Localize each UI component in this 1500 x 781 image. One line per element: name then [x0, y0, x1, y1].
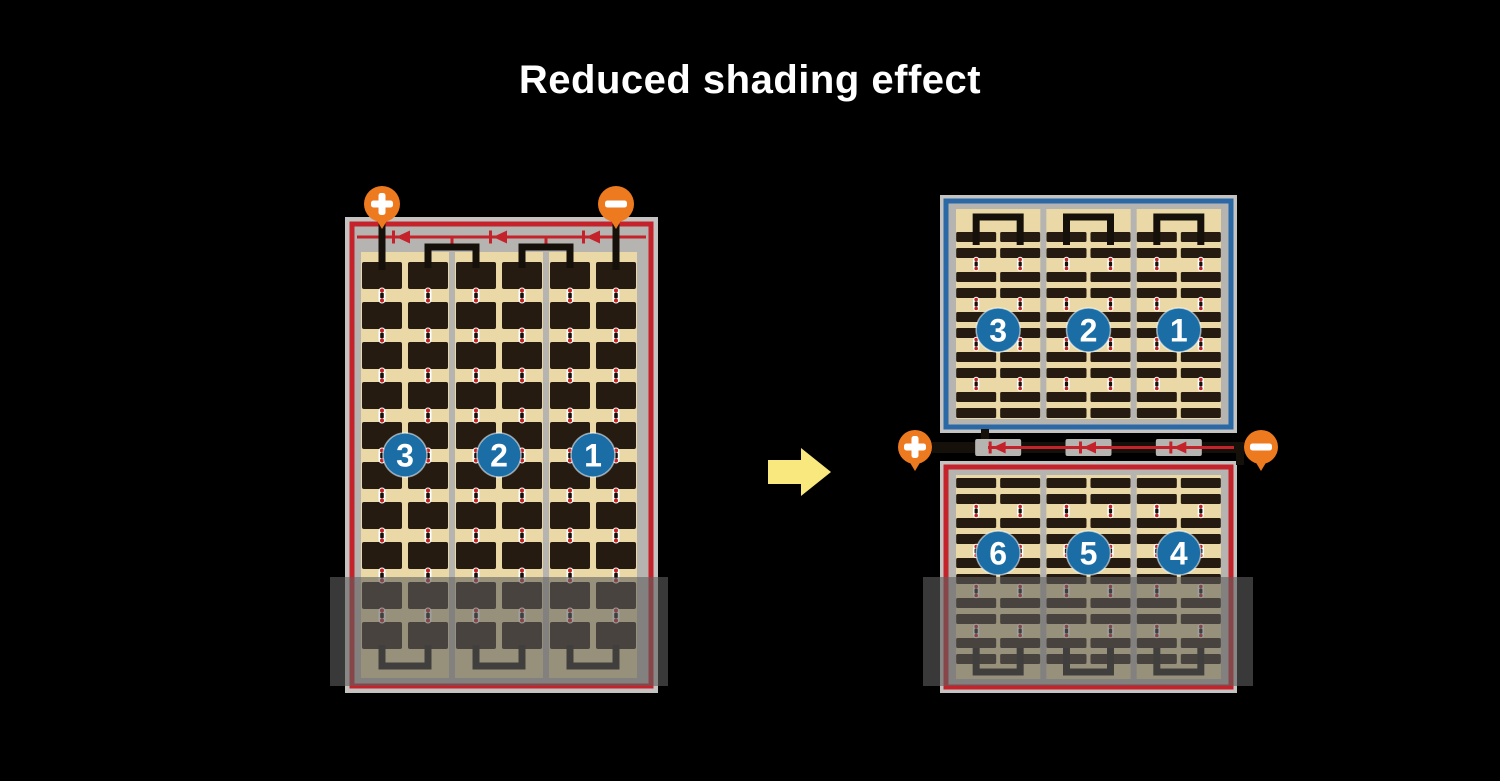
- solder-joint: [1107, 377, 1113, 391]
- solder-bar: [520, 333, 524, 339]
- solder-dot-top: [474, 409, 478, 413]
- solder-joint: [425, 408, 432, 424]
- solder-dot-top: [426, 329, 430, 333]
- half-cell: [1181, 272, 1221, 282]
- plus-terminal-icon: [898, 430, 932, 471]
- solder-dot-bottom: [1018, 514, 1022, 518]
- solder-bar: [426, 533, 430, 539]
- half-cell: [1046, 272, 1086, 282]
- solder-dot-bottom: [1065, 514, 1069, 518]
- half-cell: [1046, 518, 1086, 528]
- transition-arrow-icon: [768, 448, 831, 496]
- solar-cell: [408, 382, 448, 409]
- solar-cell: [550, 382, 590, 409]
- half-cell: [1090, 248, 1130, 258]
- half-cell: [1046, 368, 1086, 378]
- badge-number: 4: [1170, 536, 1188, 572]
- string-number-badge: 3: [383, 433, 427, 477]
- string-number-badge: 1: [571, 433, 615, 477]
- solder-dot-top: [380, 569, 384, 573]
- solder-joint: [473, 528, 480, 544]
- solder-dot-bottom: [1199, 347, 1203, 351]
- solder-joint: [379, 368, 386, 384]
- solder-dot-top: [520, 409, 524, 413]
- solder-dot-bottom: [614, 339, 618, 343]
- solder-dot-top: [1065, 505, 1069, 509]
- solder-joint: [1017, 377, 1023, 391]
- solder-dot-bottom: [474, 339, 478, 343]
- solder-dot-bottom: [520, 339, 524, 343]
- solder-joint: [519, 408, 526, 424]
- half-cell: [1137, 288, 1177, 298]
- solder-dot-bottom: [1018, 387, 1022, 391]
- half-cell: [1000, 408, 1040, 418]
- solder-bar: [614, 373, 618, 379]
- half-cell: [1000, 248, 1040, 258]
- half-cell: [956, 248, 996, 258]
- solder-dot-top: [568, 409, 572, 413]
- solder-dot-top: [520, 569, 524, 573]
- solder-dot-top: [1018, 505, 1022, 509]
- solder-dot-bottom: [568, 379, 572, 383]
- solder-dot-top: [1199, 505, 1203, 509]
- solar-cell: [362, 302, 402, 329]
- solder-dot-top: [1155, 258, 1159, 262]
- solder-dot-bottom: [520, 419, 524, 423]
- solder-dot-top: [426, 569, 430, 573]
- badge-number: 1: [584, 438, 602, 474]
- solder-joint: [519, 528, 526, 544]
- solar-cell: [456, 502, 496, 529]
- solder-dot-top: [380, 529, 384, 533]
- solder-bar: [520, 293, 524, 299]
- solder-bar: [426, 333, 430, 339]
- half-cell: [1090, 494, 1130, 504]
- solder-bar: [568, 413, 572, 419]
- solder-dot-bottom: [426, 299, 430, 303]
- solder-dot-bottom: [974, 347, 978, 351]
- half-cell: [1046, 392, 1086, 402]
- solder-bar: [975, 301, 978, 306]
- solder-dot-bottom: [380, 499, 384, 503]
- solder-bar: [520, 373, 524, 379]
- solder-bar: [380, 413, 384, 419]
- right-top-half-module: 321: [940, 195, 1237, 433]
- solder-joint: [379, 288, 386, 304]
- solder-bar: [426, 293, 430, 299]
- solder-bar: [380, 293, 384, 299]
- solder-dot-top: [614, 329, 618, 333]
- half-cell: [956, 392, 996, 402]
- solder-dot-bottom: [426, 419, 430, 423]
- solder-dot-top: [974, 505, 978, 509]
- solder-dot-top: [1199, 258, 1203, 262]
- solder-dot-bottom: [974, 267, 978, 271]
- solder-dot-top: [426, 529, 430, 533]
- solder-dot-top: [614, 569, 618, 573]
- solder-dot-top: [1155, 298, 1159, 302]
- solder-bar: [1019, 261, 1022, 266]
- diode-cathode-bar: [1079, 442, 1082, 454]
- half-cell: [956, 272, 996, 282]
- badge-number: 3: [396, 438, 414, 474]
- solder-bar: [474, 373, 478, 379]
- solder-bar: [568, 373, 572, 379]
- solder-dot-top: [1018, 298, 1022, 302]
- string-number-badge: 5: [1066, 531, 1110, 575]
- solder-dot-bottom: [1018, 347, 1022, 351]
- solder-dot-bottom: [426, 499, 430, 503]
- terminal-symbol-bar-vertical: [912, 436, 919, 458]
- terminal-symbol-bar: [1250, 444, 1272, 451]
- solder-dot-top: [1065, 258, 1069, 262]
- solder-bar: [474, 533, 478, 539]
- solder-joint: [613, 488, 620, 504]
- solder-dot-top: [1109, 298, 1113, 302]
- solder-bar: [1199, 508, 1202, 513]
- solder-joint: [1063, 297, 1069, 311]
- badge-number: 3: [989, 313, 1007, 349]
- solder-dot-bottom: [426, 379, 430, 383]
- solder-dot-top: [568, 289, 572, 293]
- solder-dot-top: [568, 369, 572, 373]
- solar-cell: [502, 502, 542, 529]
- solder-dot-top: [1018, 258, 1022, 262]
- solder-bar: [568, 293, 572, 299]
- solder-dot-top: [474, 369, 478, 373]
- solder-bar: [1065, 508, 1068, 513]
- solder-dot-top: [380, 489, 384, 493]
- solder-joint: [1198, 504, 1204, 518]
- solder-dot-top: [474, 329, 478, 333]
- solder-dot-top: [614, 489, 618, 493]
- solder-dot-top: [614, 369, 618, 373]
- half-cell: [1046, 288, 1086, 298]
- solder-bar: [614, 333, 618, 339]
- half-cell: [1137, 248, 1177, 258]
- half-cell: [1137, 518, 1177, 528]
- solder-dot-top: [520, 489, 524, 493]
- column-separator: [1131, 209, 1137, 419]
- solder-joint: [973, 257, 979, 271]
- half-cell: [1000, 478, 1040, 488]
- solder-bar: [975, 341, 978, 346]
- solder-bar: [1065, 381, 1068, 386]
- half-cell: [1046, 248, 1086, 258]
- solder-joint: [613, 368, 620, 384]
- solder-bar: [614, 293, 618, 299]
- solder-bar: [975, 508, 978, 513]
- solder-bar: [380, 533, 384, 539]
- solder-bar: [568, 533, 572, 539]
- solar-cell: [456, 342, 496, 369]
- solder-dot-top: [614, 529, 618, 533]
- half-cell: [1181, 248, 1221, 258]
- solder-joint: [973, 297, 979, 311]
- solder-dot-top: [568, 489, 572, 493]
- solder-bar: [1199, 341, 1202, 346]
- solder-dot-top: [474, 289, 478, 293]
- string-number-badge: 3: [976, 308, 1020, 352]
- solder-joint: [1154, 504, 1160, 518]
- solder-dot-bottom: [1109, 347, 1113, 351]
- solder-dot-bottom: [474, 539, 478, 543]
- half-cell: [956, 518, 996, 528]
- solder-joint: [473, 368, 480, 384]
- solder-bar: [380, 493, 384, 499]
- solder-dot-bottom: [1065, 387, 1069, 391]
- solder-dot-top: [614, 289, 618, 293]
- solar-cell: [408, 302, 448, 329]
- string-number-badge: 2: [1066, 308, 1110, 352]
- half-cell: [1090, 408, 1130, 418]
- half-cell: [956, 352, 996, 362]
- solder-dot-bottom: [1199, 514, 1203, 518]
- solar-cell: [362, 342, 402, 369]
- solder-bar: [1065, 301, 1068, 306]
- solder-joint: [425, 488, 432, 504]
- solder-dot-top: [380, 369, 384, 373]
- string-number-badge: 1: [1157, 308, 1201, 352]
- solder-bar: [380, 373, 384, 379]
- solder-dot-bottom: [474, 499, 478, 503]
- solder-joint: [519, 368, 526, 384]
- half-cell: [1181, 478, 1221, 488]
- solder-bar: [474, 493, 478, 499]
- solar-cell: [456, 382, 496, 409]
- solder-bar: [1155, 381, 1158, 386]
- solder-joint: [1198, 377, 1204, 391]
- solar-cell: [502, 342, 542, 369]
- half-cell: [1137, 494, 1177, 504]
- solder-dot-top: [380, 409, 384, 413]
- solder-bar: [426, 413, 430, 419]
- half-cell: [1137, 272, 1177, 282]
- solder-joint: [973, 377, 979, 391]
- solder-dot-bottom: [1155, 514, 1159, 518]
- solar-cell: [550, 302, 590, 329]
- solar-cell: [502, 302, 542, 329]
- solder-bar: [1109, 301, 1112, 306]
- solder-bar: [474, 413, 478, 419]
- solder-bar: [1065, 261, 1068, 266]
- solder-joint: [613, 528, 620, 544]
- solar-cell: [408, 342, 448, 369]
- half-cell: [1181, 494, 1221, 504]
- solder-dot-bottom: [380, 299, 384, 303]
- solder-joint: [1198, 257, 1204, 271]
- solder-dot-bottom: [1018, 267, 1022, 271]
- solder-dot-top: [614, 409, 618, 413]
- solder-joint: [1154, 377, 1160, 391]
- solder-bar: [520, 533, 524, 539]
- solder-joint: [379, 488, 386, 504]
- half-cell: [1137, 392, 1177, 402]
- solder-joint: [473, 488, 480, 504]
- solder-dot-top: [520, 289, 524, 293]
- solder-dot-top: [426, 409, 430, 413]
- solar-cell: [502, 542, 542, 569]
- solder-bar: [1109, 381, 1112, 386]
- solder-dot-top: [426, 489, 430, 493]
- solder-bar: [426, 373, 430, 379]
- solder-dot-bottom: [520, 299, 524, 303]
- half-cell: [956, 494, 996, 504]
- solder-bar: [426, 493, 430, 499]
- diode-cathode-bar: [989, 442, 992, 454]
- solder-dot-top: [520, 529, 524, 533]
- badge-number: 1: [1170, 313, 1188, 349]
- solder-dot-top: [380, 329, 384, 333]
- solder-dot-top: [520, 329, 524, 333]
- solder-dot-bottom: [1109, 514, 1113, 518]
- solder-bar: [1065, 341, 1068, 346]
- half-cell: [1137, 368, 1177, 378]
- solder-joint: [567, 488, 574, 504]
- half-cell: [1090, 288, 1130, 298]
- solder-dot-top: [1065, 378, 1069, 382]
- solder-joint: [613, 328, 620, 344]
- badge-number: 2: [490, 438, 508, 474]
- solder-joint: [1107, 504, 1113, 518]
- solder-joint: [379, 528, 386, 544]
- solder-dot-bottom: [474, 419, 478, 423]
- solder-joint: [1017, 297, 1023, 311]
- half-cell: [1181, 368, 1221, 378]
- half-cell: [1181, 408, 1221, 418]
- solder-dot-bottom: [1109, 387, 1113, 391]
- shading-overlay-left: [330, 577, 668, 686]
- half-cell: [1090, 272, 1130, 282]
- solder-joint: [473, 328, 480, 344]
- solder-dot-top: [568, 329, 572, 333]
- solder-bar: [1019, 301, 1022, 306]
- shading-effect-diagram: 321321654: [0, 0, 1500, 781]
- solder-bar: [568, 333, 572, 339]
- solder-dot-bottom: [614, 379, 618, 383]
- minus-terminal-icon: [1244, 430, 1278, 471]
- solder-joint: [613, 288, 620, 304]
- solder-dot-bottom: [380, 379, 384, 383]
- solder-dot-top: [474, 489, 478, 493]
- solder-dot-top: [1199, 298, 1203, 302]
- solder-joint: [379, 328, 386, 344]
- solder-bar: [568, 493, 572, 499]
- solder-bar: [1109, 341, 1112, 346]
- solder-joint: [425, 288, 432, 304]
- shading-overlay-right: [923, 577, 1253, 686]
- solder-dot-top: [974, 258, 978, 262]
- solder-bar: [1155, 341, 1158, 346]
- half-cell: [956, 368, 996, 378]
- solder-dot-top: [1065, 298, 1069, 302]
- solder-dot-top: [1109, 258, 1113, 262]
- solder-bar: [1155, 508, 1158, 513]
- solder-dot-bottom: [974, 307, 978, 311]
- solder-dot-top: [426, 369, 430, 373]
- solder-bar: [474, 293, 478, 299]
- terminal-symbol-bar-vertical: [379, 193, 386, 215]
- solder-bar: [1155, 261, 1158, 266]
- solder-joint: [1107, 297, 1113, 311]
- diode-cathode-bar: [489, 231, 492, 244]
- solder-dot-bottom: [974, 514, 978, 518]
- solder-dot-top: [1199, 378, 1203, 382]
- solar-cell: [362, 542, 402, 569]
- half-cell: [1000, 494, 1040, 504]
- half-cell: [1090, 518, 1130, 528]
- half-cell: [1046, 478, 1086, 488]
- solar-cell: [362, 502, 402, 529]
- solder-dot-bottom: [1109, 267, 1113, 271]
- solder-bar: [1019, 341, 1022, 346]
- solder-dot-bottom: [1155, 307, 1159, 311]
- half-cell: [1090, 392, 1130, 402]
- solder-dot-bottom: [380, 339, 384, 343]
- solder-dot-bottom: [474, 379, 478, 383]
- solder-dot-bottom: [1065, 347, 1069, 351]
- solder-joint: [473, 408, 480, 424]
- solder-bar: [1109, 261, 1112, 266]
- solar-cell: [456, 542, 496, 569]
- solder-dot-bottom: [1199, 267, 1203, 271]
- solder-dot-bottom: [614, 299, 618, 303]
- solder-dot-bottom: [1155, 387, 1159, 391]
- solder-joint: [567, 528, 574, 544]
- solder-bar: [975, 261, 978, 266]
- half-cell: [1046, 352, 1086, 362]
- solder-bar: [614, 493, 618, 499]
- solder-bar: [1019, 508, 1022, 513]
- solder-bar: [1199, 381, 1202, 386]
- solder-joint: [1063, 257, 1069, 271]
- solder-bar: [614, 413, 618, 419]
- solar-cell: [596, 302, 636, 329]
- solder-dot-bottom: [568, 419, 572, 423]
- half-cell: [1000, 352, 1040, 362]
- solder-dot-top: [974, 298, 978, 302]
- diode-cathode-bar: [392, 231, 395, 244]
- solder-bar: [474, 333, 478, 339]
- solder-joint: [1198, 297, 1204, 311]
- solder-dot-top: [568, 569, 572, 573]
- solder-dot-bottom: [520, 539, 524, 543]
- solder-dot-bottom: [1065, 307, 1069, 311]
- half-cell: [1181, 392, 1221, 402]
- solder-joint: [1017, 257, 1023, 271]
- solder-joint: [1017, 504, 1023, 518]
- solder-joint: [1154, 257, 1160, 271]
- solder-dot-top: [974, 378, 978, 382]
- solder-bar: [614, 533, 618, 539]
- diode-cathode-bar: [582, 231, 585, 244]
- string-number-badge: 6: [976, 531, 1020, 575]
- solder-dot-bottom: [568, 499, 572, 503]
- solder-dot-bottom: [974, 387, 978, 391]
- string-number-badge: 4: [1157, 531, 1201, 575]
- solder-dot-bottom: [520, 499, 524, 503]
- solder-dot-top: [1018, 378, 1022, 382]
- solar-cell: [596, 382, 636, 409]
- solar-cell: [596, 502, 636, 529]
- solder-dot-bottom: [568, 539, 572, 543]
- half-cell: [1046, 494, 1086, 504]
- solder-dot-top: [426, 289, 430, 293]
- solder-dot-bottom: [1065, 267, 1069, 271]
- solder-joint: [1154, 297, 1160, 311]
- half-cell: [1000, 272, 1040, 282]
- badge-number: 5: [1080, 536, 1098, 572]
